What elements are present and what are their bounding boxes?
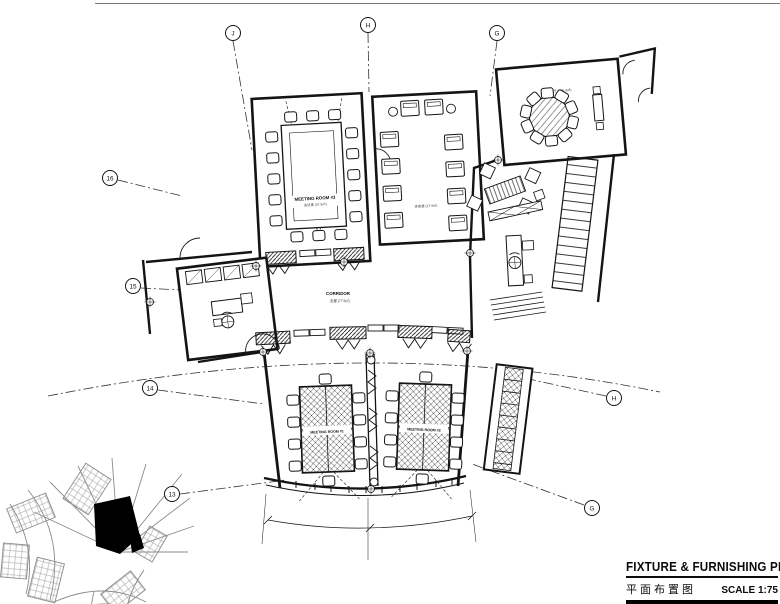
grid-bubble-label: 16 bbox=[106, 175, 114, 182]
grid-bubble-label: G bbox=[495, 30, 500, 37]
exterior-steps bbox=[490, 292, 546, 320]
chair-symbol bbox=[313, 230, 326, 241]
floor-plan-svg: J H G 16 15 14 13 H G MEETING ROOM #3 会议… bbox=[0, 0, 780, 604]
grid-bubble-label: H bbox=[612, 395, 617, 402]
chair-symbol bbox=[349, 190, 362, 201]
armchair-symbol bbox=[384, 212, 403, 228]
armchair-symbol bbox=[380, 131, 399, 147]
title-rule bbox=[626, 576, 778, 578]
grid-bubble: H bbox=[607, 391, 622, 406]
chair-symbol bbox=[345, 127, 358, 138]
side-table-symbol bbox=[388, 107, 397, 116]
corridor-door-wall bbox=[256, 325, 473, 355]
cabinet-symbol bbox=[223, 265, 240, 280]
sideboard bbox=[488, 201, 543, 221]
chair-symbol bbox=[350, 211, 363, 222]
grid-bubble: J bbox=[226, 26, 241, 41]
chair-symbol bbox=[269, 195, 282, 206]
chair-symbol bbox=[346, 148, 359, 159]
armchair-symbol bbox=[447, 188, 466, 204]
sheet-border-line bbox=[95, 3, 780, 4]
grid-bubble: G bbox=[490, 26, 505, 41]
chair-symbol bbox=[268, 174, 281, 185]
chair-symbol bbox=[335, 229, 348, 240]
title-block: FIXTURE & FURNISHING PLAN 平面布置图 SCALE 1:… bbox=[626, 560, 778, 604]
chair-symbol bbox=[306, 110, 319, 121]
room-meeting-1: MEETING ROOM #1 bbox=[286, 373, 368, 502]
grid-bubble: 13 bbox=[165, 487, 180, 502]
grid-bubble: 14 bbox=[143, 381, 158, 396]
armchair-symbol bbox=[382, 158, 401, 174]
grid-bubble-label: 13 bbox=[168, 491, 176, 498]
side-table-symbol bbox=[446, 104, 455, 113]
chair-symbol bbox=[328, 109, 341, 120]
reception-desk bbox=[506, 235, 536, 286]
grid-bubble: 15 bbox=[126, 279, 141, 294]
corridor-label: CORRIDOR bbox=[326, 291, 351, 296]
chair-symbol bbox=[270, 216, 283, 227]
console-table bbox=[593, 94, 604, 121]
room-banquet: 宴会厅 (205.9㎡) bbox=[495, 48, 663, 165]
armchair-symbol bbox=[446, 161, 465, 177]
armchair-symbol bbox=[449, 215, 468, 231]
title-block-bar bbox=[626, 600, 778, 604]
sheet-title-chinese: 平面布置图 bbox=[626, 581, 696, 597]
scale-label: SCALE 1:75 bbox=[721, 585, 778, 596]
rooms-meeting-1-2: MEETING ROOM #1 MEETING ROOM #2 bbox=[262, 350, 532, 560]
room-meeting-3: MEETING ROOM #3 会议室 (47.9㎡) bbox=[252, 93, 371, 275]
armchair-symbol bbox=[401, 100, 420, 116]
chair-symbol bbox=[348, 169, 361, 180]
movable-partition bbox=[366, 354, 378, 486]
sheet-title: FIXTURE & FURNISHING PLAN bbox=[626, 560, 767, 574]
grid-bubble: G bbox=[585, 501, 600, 516]
armchair-symbol bbox=[444, 134, 463, 150]
grid-bubble: H bbox=[361, 18, 376, 33]
grid-bubble-label: 14 bbox=[146, 385, 154, 392]
staircase bbox=[484, 364, 533, 474]
armchair-symbol bbox=[424, 99, 443, 115]
grid-bubble: 16 bbox=[103, 171, 118, 186]
cabinet-symbol bbox=[185, 270, 202, 285]
chair-symbol bbox=[284, 112, 297, 123]
armchair-symbol bbox=[383, 185, 402, 201]
grid-bubble-label: G bbox=[590, 505, 595, 512]
key-plan bbox=[1, 458, 194, 604]
drawing-sheet: J H G 16 15 14 13 H G MEETING ROOM #3 会议… bbox=[0, 0, 780, 604]
grid-bubble-label: 15 bbox=[129, 283, 137, 290]
grid-bubble-label: H bbox=[366, 22, 371, 29]
chair-symbol bbox=[267, 153, 280, 164]
terrace-ramp bbox=[552, 157, 598, 292]
conference-table bbox=[281, 122, 346, 229]
office-desk bbox=[211, 298, 242, 316]
chair-symbol bbox=[265, 132, 278, 143]
grid-bubble-label: J bbox=[231, 30, 234, 37]
room-lounge: 休息室 (27.9㎡) bbox=[372, 91, 484, 244]
chair-symbol bbox=[291, 231, 304, 242]
dimension-arc bbox=[262, 490, 476, 560]
corridor-area-label: 走廊 (77.9㎡) bbox=[330, 298, 349, 303]
cabinet-symbol bbox=[204, 267, 221, 282]
